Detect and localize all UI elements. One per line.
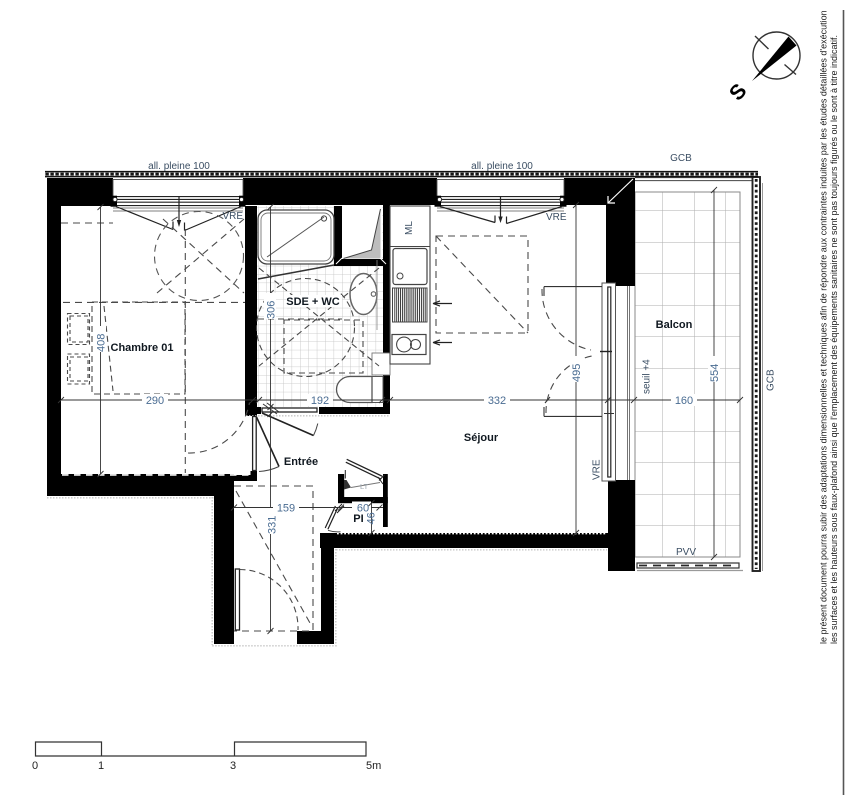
svg-text:3: 3 xyxy=(230,760,236,772)
svg-text:PI: PI xyxy=(353,513,363,525)
svg-text:192: 192 xyxy=(311,395,329,407)
svg-text:46: 46 xyxy=(366,512,378,524)
svg-text:1: 1 xyxy=(98,760,104,772)
svg-text:VRE: VRE xyxy=(546,212,567,223)
svg-text:GCB: GCB xyxy=(766,369,777,391)
svg-text:ML: ML xyxy=(404,221,415,235)
svg-text:Entrée: Entrée xyxy=(284,456,318,468)
svg-text:SDE + WC: SDE + WC xyxy=(286,296,340,308)
svg-text:331: 331 xyxy=(267,516,279,534)
svg-text:5m: 5m xyxy=(366,760,381,772)
svg-text:seuil +4: seuil +4 xyxy=(642,359,653,394)
svg-text:Chambre 01: Chambre 01 xyxy=(111,342,174,354)
svg-text:306: 306 xyxy=(266,301,278,319)
svg-text:495: 495 xyxy=(571,364,583,382)
svg-text:408: 408 xyxy=(96,334,108,352)
svg-text:160: 160 xyxy=(675,395,693,407)
svg-text:GCB: GCB xyxy=(670,153,692,164)
svg-text:PVV: PVV xyxy=(676,547,696,558)
svg-text:159: 159 xyxy=(277,503,295,515)
svg-text:all. pleine 100: all. pleine 100 xyxy=(471,161,533,172)
svg-text:332: 332 xyxy=(488,395,506,407)
svg-text:VRE: VRE xyxy=(592,459,603,480)
svg-text:0: 0 xyxy=(32,760,38,772)
svg-text:Balcon: Balcon xyxy=(656,319,693,331)
svg-text:554: 554 xyxy=(709,364,721,382)
svg-text:all. pleine 100: all. pleine 100 xyxy=(148,161,210,172)
svg-text:le présent document pourra sub: le présent document pourra subir des ada… xyxy=(819,10,829,644)
svg-text:LT: LT xyxy=(360,482,369,491)
svg-text:290: 290 xyxy=(146,395,164,407)
svg-text:VRE: VRE xyxy=(223,211,244,222)
svg-text:les surfaces et les hauteurs s: les surfaces et les hauteurs sous faux-p… xyxy=(829,35,839,644)
svg-text:Séjour: Séjour xyxy=(464,432,499,444)
